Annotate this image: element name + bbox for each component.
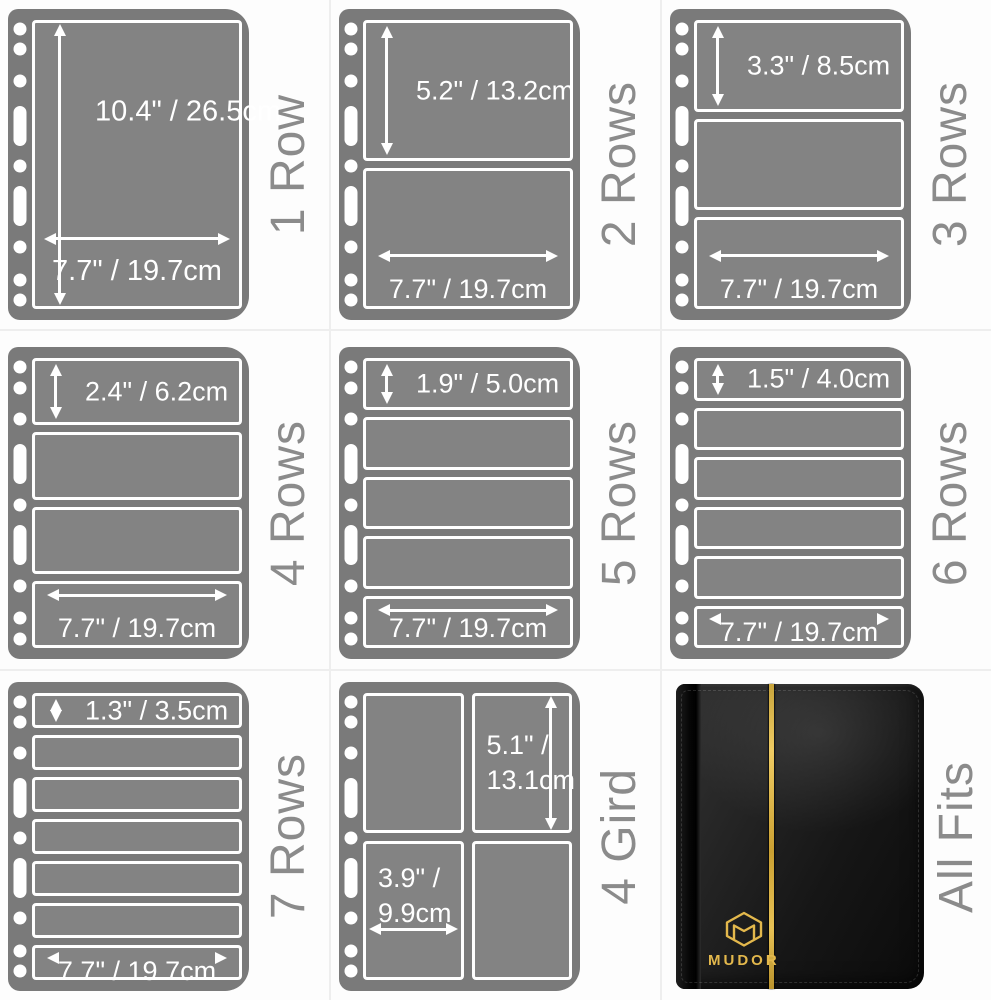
- punch-hole: [14, 832, 27, 845]
- panel-label: 1 Row: [261, 94, 316, 235]
- punch-hole: [14, 43, 27, 56]
- punch-hole: [345, 944, 358, 957]
- pocket: 7.7" / 19.7cm: [32, 581, 242, 648]
- pocket: 1.3" / 3.5cm: [32, 693, 242, 728]
- punch-hole: [676, 74, 689, 87]
- punch-hole: [14, 912, 27, 925]
- pocket: [694, 408, 904, 451]
- pocket: [363, 536, 573, 588]
- width-arrow-icon: [720, 254, 878, 257]
- punch-hole: [345, 186, 358, 226]
- height-dimension-label: 2.4" / 6.2cm: [85, 378, 228, 405]
- punch-hole-strip: [339, 347, 363, 659]
- punch-hole: [345, 444, 358, 484]
- pocket-area: 1.5" / 4.0cm7.7" / 19.7cm: [694, 347, 911, 659]
- punch-hole: [14, 632, 27, 645]
- punch-hole: [345, 361, 358, 374]
- mudor-cube-icon: [724, 911, 764, 948]
- pocket-page-7-rows: 1.3" / 3.5cm7.7" / 19.7cm: [8, 682, 249, 991]
- punch-hole: [14, 361, 27, 374]
- punch-hole: [14, 293, 27, 306]
- pocket-area: 10.4" / 26.5cm7.7" / 19.7cm: [32, 9, 249, 320]
- punch-hole: [345, 240, 358, 253]
- pocket-page-2-rows: 5.2" / 13.2cm7.7" / 19.7cm: [339, 9, 580, 320]
- pocket: 7.7" / 19.7cm: [363, 596, 573, 648]
- height-arrow-icon: [716, 375, 719, 384]
- pocket-page-4-grid: 5.1" / 13.1cm 3.9" / 9.9cm: [339, 682, 580, 991]
- width-dimension-label: 7.7" / 19.7cm: [373, 615, 563, 642]
- pocket: [472, 841, 573, 981]
- pocket: [32, 735, 242, 770]
- width-arrow-icon: [55, 237, 219, 240]
- punch-hole: [676, 381, 689, 394]
- punch-hole: [345, 412, 358, 425]
- punch-hole: [345, 381, 358, 394]
- punch-hole: [676, 106, 689, 146]
- width-dimension-label: 7.7" / 19.7cm: [704, 276, 894, 303]
- height-arrow-icon: [385, 37, 388, 144]
- punch-hole: [14, 444, 27, 484]
- panel-4-grid: 5.1" / 13.1cm 3.9" / 9.9cm 4 Gird: [331, 671, 660, 1000]
- panel-1-row: 10.4" / 26.5cm7.7" / 19.7cm 1 Row: [0, 0, 329, 329]
- punch-hole: [345, 74, 358, 87]
- punch-hole: [14, 381, 27, 394]
- punch-hole-strip: [8, 682, 32, 991]
- punch-hole: [14, 964, 27, 977]
- pocket: 7.7" / 19.7cm: [363, 168, 573, 309]
- punch-hole: [345, 498, 358, 511]
- height-arrow-icon: [54, 375, 57, 408]
- punch-hole: [345, 293, 358, 306]
- punch-hole: [676, 498, 689, 511]
- punch-hole: [676, 612, 689, 625]
- pocket-area: 1.9" / 5.0cm7.7" / 19.7cm: [363, 347, 580, 659]
- height-arrow-icon: [716, 37, 719, 95]
- punch-hole: [345, 964, 358, 977]
- pocket: [694, 556, 904, 599]
- panel-label: 3 Rows: [923, 81, 978, 247]
- pocket: [694, 507, 904, 550]
- panel-6-rows: 1.5" / 4.0cm7.7" / 19.7cm 6 Rows: [662, 331, 991, 669]
- punch-hole: [676, 444, 689, 484]
- pocket-area: 3.3" / 8.5cm7.7" / 19.7cm: [694, 9, 911, 320]
- punch-hole: [345, 747, 358, 760]
- panel-label: 2 Rows: [592, 81, 647, 247]
- pocket: [363, 477, 573, 529]
- height-dimension-label: 10.4" / 26.5cm: [95, 98, 281, 127]
- height-arrow-icon: [54, 710, 57, 711]
- punch-hole: [345, 632, 358, 645]
- punch-hole: [345, 716, 358, 729]
- label-column: 7 Rows: [249, 682, 327, 991]
- punch-hole: [345, 23, 358, 36]
- width-dimension-label: 7.7" / 19.7cm: [39, 257, 235, 286]
- punch-hole: [345, 696, 358, 709]
- punch-hole: [676, 186, 689, 226]
- pocket: 5.1" / 13.1cm: [472, 693, 573, 833]
- punch-hole: [14, 160, 27, 173]
- pocket-area: 5.1" / 13.1cm 3.9" / 9.9cm: [363, 682, 580, 991]
- width-arrow-icon: [389, 254, 547, 257]
- punch-hole: [14, 858, 27, 898]
- panel-7-rows: 1.3" / 3.5cm7.7" / 19.7cm 7 Rows: [0, 671, 329, 1000]
- pocket: [32, 861, 242, 896]
- brand-name: MUDOR: [708, 952, 780, 969]
- panel-3-rows: 3.3" / 8.5cm7.7" / 19.7cm 3 Rows: [662, 0, 991, 329]
- width-dimension-label: 7.7" / 19.7cm: [373, 276, 563, 303]
- product-collage: 10.4" / 26.5cm7.7" / 19.7cm 1 Row 5.2" /…: [0, 0, 991, 1000]
- pocket: 3.3" / 8.5cm: [694, 20, 904, 112]
- punch-hole-strip: [8, 9, 32, 320]
- height-dimension-label: 5.1" / 13.1cm: [487, 728, 576, 798]
- label-column: 2 Rows: [580, 9, 658, 320]
- punch-hole: [676, 240, 689, 253]
- height-arrow-icon: [385, 375, 388, 393]
- pocket: [694, 457, 904, 500]
- width-arrow-icon: [58, 594, 216, 597]
- width-dimension-label: 3.9" / 9.9cm: [378, 861, 452, 931]
- punch-hole: [14, 106, 27, 146]
- panel-binder: MUDOR All Fits: [662, 671, 991, 1000]
- punch-hole: [345, 912, 358, 925]
- punch-hole: [676, 579, 689, 592]
- punch-hole: [676, 273, 689, 286]
- label-column: 1 Row: [249, 9, 327, 320]
- punch-hole: [14, 186, 27, 226]
- binder-album: MUDOR: [676, 684, 924, 989]
- pocket: 10.4" / 26.5cm7.7" / 19.7cm: [32, 20, 242, 309]
- pocket-page-3-rows: 3.3" / 8.5cm7.7" / 19.7cm: [670, 9, 911, 320]
- punch-hole-strip: [339, 9, 363, 320]
- punch-hole: [345, 106, 358, 146]
- punch-hole: [345, 273, 358, 286]
- punch-hole: [676, 160, 689, 173]
- pocket: [694, 119, 904, 211]
- pocket: 7.7" / 19.7cm: [694, 217, 904, 309]
- width-dimension-label: 7.7" / 19.7cm: [42, 958, 232, 985]
- punch-hole-strip: [670, 9, 694, 320]
- punch-hole: [14, 696, 27, 709]
- pocket-page-4-rows: 2.4" / 6.2cm7.7" / 19.7cm: [8, 347, 249, 659]
- label-column: 4 Rows: [249, 347, 327, 659]
- brand-logo: MUDOR: [708, 911, 780, 969]
- punch-hole-strip: [339, 682, 363, 991]
- panel-label: 7 Rows: [261, 753, 316, 919]
- binder-spine: [676, 684, 701, 989]
- punch-hole: [14, 498, 27, 511]
- pocket: 1.9" / 5.0cm: [363, 358, 573, 410]
- pocket-page-5-rows: 1.9" / 5.0cm7.7" / 19.7cm: [339, 347, 580, 659]
- pocket: [32, 777, 242, 812]
- punch-hole: [676, 43, 689, 56]
- punch-hole: [14, 525, 27, 565]
- panel-label: All Fits: [929, 761, 984, 913]
- punch-hole: [14, 74, 27, 87]
- punch-hole: [14, 23, 27, 36]
- pocket-area: 2.4" / 6.2cm7.7" / 19.7cm: [32, 347, 249, 659]
- punch-hole: [14, 273, 27, 286]
- punch-hole: [676, 293, 689, 306]
- punch-hole: [14, 716, 27, 729]
- punch-hole: [345, 778, 358, 818]
- panel-label: 6 Rows: [923, 420, 978, 586]
- pocket: [32, 432, 242, 499]
- punch-hole-strip: [8, 347, 32, 659]
- punch-hole: [676, 412, 689, 425]
- panel-4-rows: 2.4" / 6.2cm7.7" / 19.7cm 4 Rows: [0, 331, 329, 669]
- punch-hole: [345, 43, 358, 56]
- pocket: 5.2" / 13.2cm: [363, 20, 573, 161]
- height-dimension-label: 1.9" / 5.0cm: [416, 371, 559, 398]
- pocket: [363, 417, 573, 469]
- punch-hole: [14, 412, 27, 425]
- width-arrow-icon: [380, 928, 447, 931]
- label-column: 4 Gird: [580, 682, 658, 991]
- pocket: [32, 507, 242, 574]
- pocket: 2.4" / 6.2cm: [32, 358, 242, 425]
- punch-hole: [14, 944, 27, 957]
- punch-hole: [676, 23, 689, 36]
- pocket: 1.5" / 4.0cm: [694, 358, 904, 401]
- label-column: 5 Rows: [580, 347, 658, 659]
- panel-label: 4 Gird: [592, 768, 647, 905]
- panel-label: 4 Rows: [261, 420, 316, 586]
- punch-hole: [14, 579, 27, 592]
- pocket-area: 1.3" / 3.5cm7.7" / 19.7cm: [32, 682, 249, 991]
- punch-hole: [345, 832, 358, 845]
- punch-hole: [345, 579, 358, 592]
- label-column: All Fits: [924, 682, 989, 991]
- height-dimension-label: 5.2" / 13.2cm: [416, 77, 574, 104]
- punch-hole: [14, 240, 27, 253]
- height-dimension-label: 1.3" / 3.5cm: [85, 697, 228, 724]
- pocket-page-6-rows: 1.5" / 4.0cm7.7" / 19.7cm: [670, 347, 911, 659]
- label-column: 6 Rows: [911, 347, 989, 659]
- pocket-page-1-row: 10.4" / 26.5cm7.7" / 19.7cm: [8, 9, 249, 320]
- punch-hole: [676, 632, 689, 645]
- punch-hole: [345, 525, 358, 565]
- punch-hole: [345, 612, 358, 625]
- label-column: 3 Rows: [911, 9, 989, 320]
- punch-hole: [345, 858, 358, 898]
- punch-hole: [345, 160, 358, 173]
- pocket: 7.7" / 19.7cm: [32, 945, 242, 980]
- height-dimension-label: 3.3" / 8.5cm: [747, 52, 890, 79]
- punch-hole: [14, 747, 27, 760]
- pocket: [363, 693, 464, 833]
- pocket: 3.9" / 9.9cm: [363, 841, 464, 981]
- panel-5-rows: 1.9" / 5.0cm7.7" / 19.7cm 5 Rows: [331, 331, 660, 669]
- height-dimension-label: 1.5" / 4.0cm: [747, 366, 890, 393]
- width-arrow-icon: [389, 609, 547, 612]
- width-dimension-label: 7.7" / 19.7cm: [42, 615, 232, 642]
- punch-hole: [676, 361, 689, 374]
- punch-hole: [14, 778, 27, 818]
- panel-2-rows: 5.2" / 13.2cm7.7" / 19.7cm 2 Rows: [331, 0, 660, 329]
- pocket: [32, 903, 242, 938]
- pocket: [32, 819, 242, 854]
- panel-label: 5 Rows: [592, 420, 647, 586]
- width-dimension-label: 7.7" / 19.7cm: [704, 619, 894, 646]
- punch-hole-strip: [670, 347, 694, 659]
- pocket: 7.7" / 19.7cm: [694, 606, 904, 649]
- punch-hole: [676, 525, 689, 565]
- punch-hole: [14, 612, 27, 625]
- pocket-area: 5.2" / 13.2cm7.7" / 19.7cm: [363, 9, 580, 320]
